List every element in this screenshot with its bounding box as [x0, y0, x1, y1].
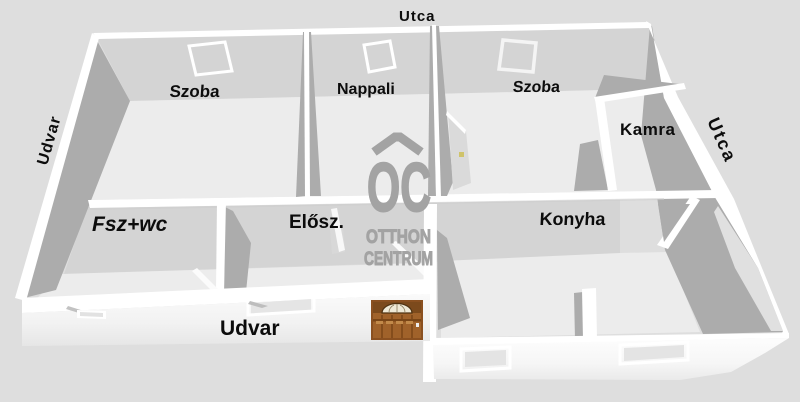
svg-text:CENTRUM: CENTRUM	[364, 249, 433, 270]
svg-text:Nappali: Nappali	[337, 81, 395, 98]
svg-text:Fsz+wc: Fsz+wc	[92, 213, 168, 236]
svg-text:Utca: Utca	[399, 8, 436, 25]
svg-text:Elősz.: Elősz.	[289, 212, 344, 233]
svg-text:OC: OC	[367, 149, 431, 226]
svg-text:OTTHON: OTTHON	[366, 227, 431, 248]
svg-text:Szoba: Szoba	[169, 82, 221, 101]
svg-text:Szoba: Szoba	[512, 79, 560, 96]
svg-text:Udvar: Udvar	[220, 317, 280, 340]
svg-text:Konyha: Konyha	[539, 209, 607, 229]
svg-text:Kamra: Kamra	[620, 120, 675, 139]
